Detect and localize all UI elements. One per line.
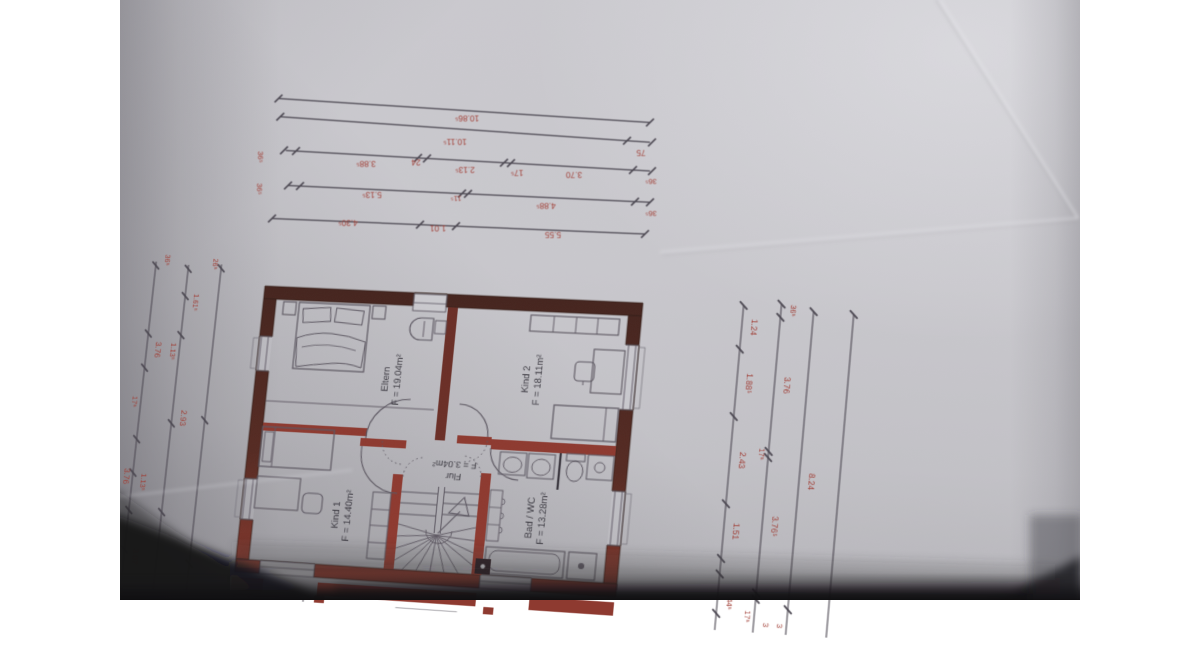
svg-text:3: 3 (774, 624, 782, 629)
svg-text:17⁵: 17⁵ (742, 610, 751, 623)
svg-text:3: 3 (761, 623, 769, 628)
